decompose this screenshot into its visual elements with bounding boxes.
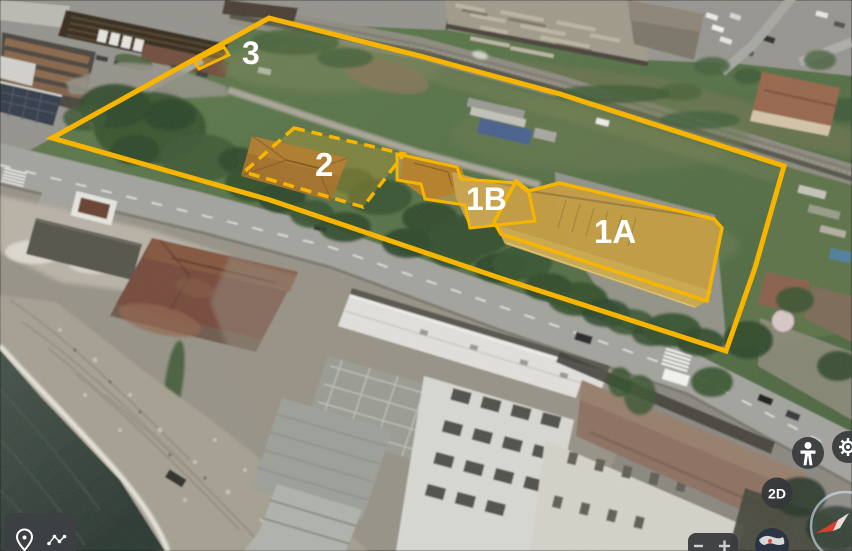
svg-text:1B: 1B [466, 181, 507, 217]
svg-text:1A: 1A [594, 213, 636, 250]
svg-text:2D: 2D [768, 486, 786, 502]
svg-text:2: 2 [315, 146, 333, 183]
svg-text:3: 3 [242, 35, 260, 71]
